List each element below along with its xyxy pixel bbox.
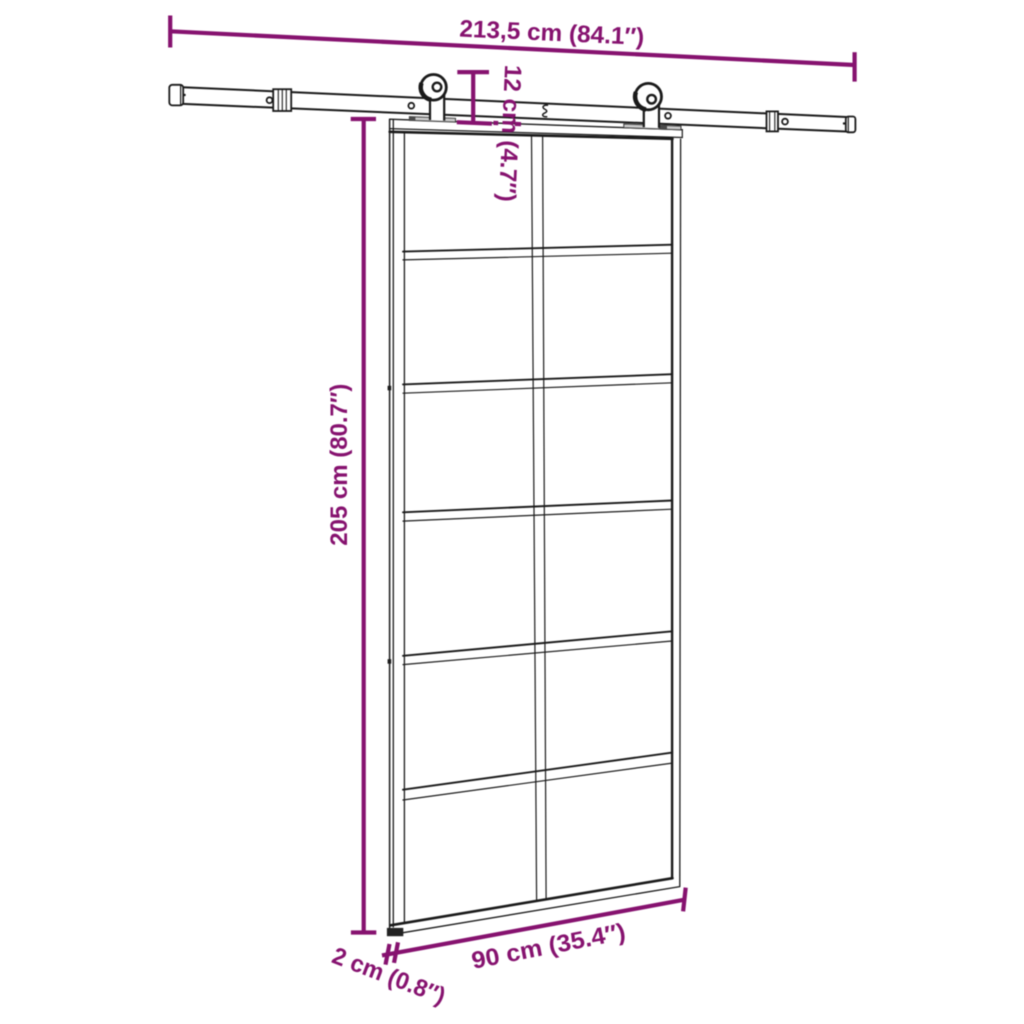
svg-text:205 cm (80.7″): 205 cm (80.7″) [326,384,353,546]
